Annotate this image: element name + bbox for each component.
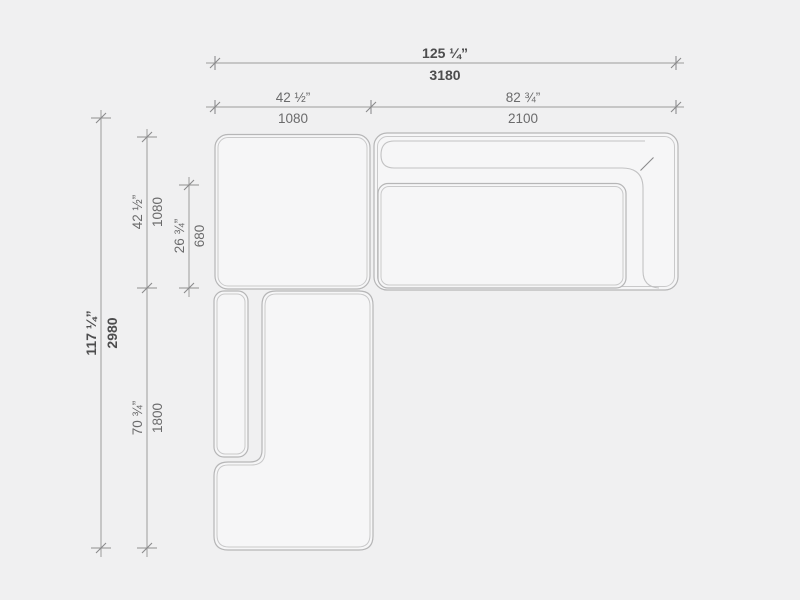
dim-label-right-section-metric: 2100	[508, 111, 538, 126]
sofa-right-module	[374, 133, 678, 290]
chaise-armrest-outline	[214, 291, 248, 457]
dim-label-corner-depth-imperial: 42 ½”	[130, 195, 145, 230]
dim-label-seat-depth-metric: 680	[192, 225, 207, 248]
dim-label-left-section-imperial: 42 ½”	[276, 90, 311, 105]
chaise-module	[214, 291, 373, 550]
dim-label-chaise-length-imperial: 70 ¾”	[130, 401, 145, 436]
dim-label-right-section-imperial: 82 ¾”	[506, 90, 541, 105]
dim-label-chaise-length-metric: 1800	[150, 403, 165, 433]
dim-label-overall-depth-imperial: 117 ¼”	[83, 310, 99, 355]
dim-label-corner-depth-metric: 1080	[150, 197, 165, 227]
dim-label-left-section-metric: 1080	[278, 111, 308, 126]
dim-left-column: 42 ½” 1080 70 ¾” 1800	[130, 129, 165, 557]
dim-section-widths: 42 ½” 1080 82 ¾” 2100	[206, 90, 684, 126]
dim-label-overall-width-imperial: 125 ¼”	[422, 45, 468, 61]
dim-seat-depth: 26 ¾” 680	[172, 177, 207, 297]
sofa-dimension-diagram: 125 ¼” 3180 42 ½” 1080 82 ¾” 2100 117 ¼”…	[0, 0, 800, 600]
sofa-plan-svg: 125 ¼” 3180 42 ½” 1080 82 ¾” 2100 117 ¼”…	[0, 0, 800, 600]
corner-seat-outline	[215, 135, 370, 290]
dim-label-seat-depth-imperial: 26 ¾”	[172, 219, 187, 254]
dim-overall-width: 125 ¼” 3180	[206, 45, 684, 83]
dim-overall-depth: 117 ¼” 2980	[83, 110, 120, 557]
dim-label-overall-width-metric: 3180	[429, 67, 460, 83]
dim-label-overall-depth-metric: 2980	[104, 317, 120, 348]
corner-seat-module	[215, 135, 370, 290]
sofa-seat-cushion-outline	[378, 184, 626, 289]
